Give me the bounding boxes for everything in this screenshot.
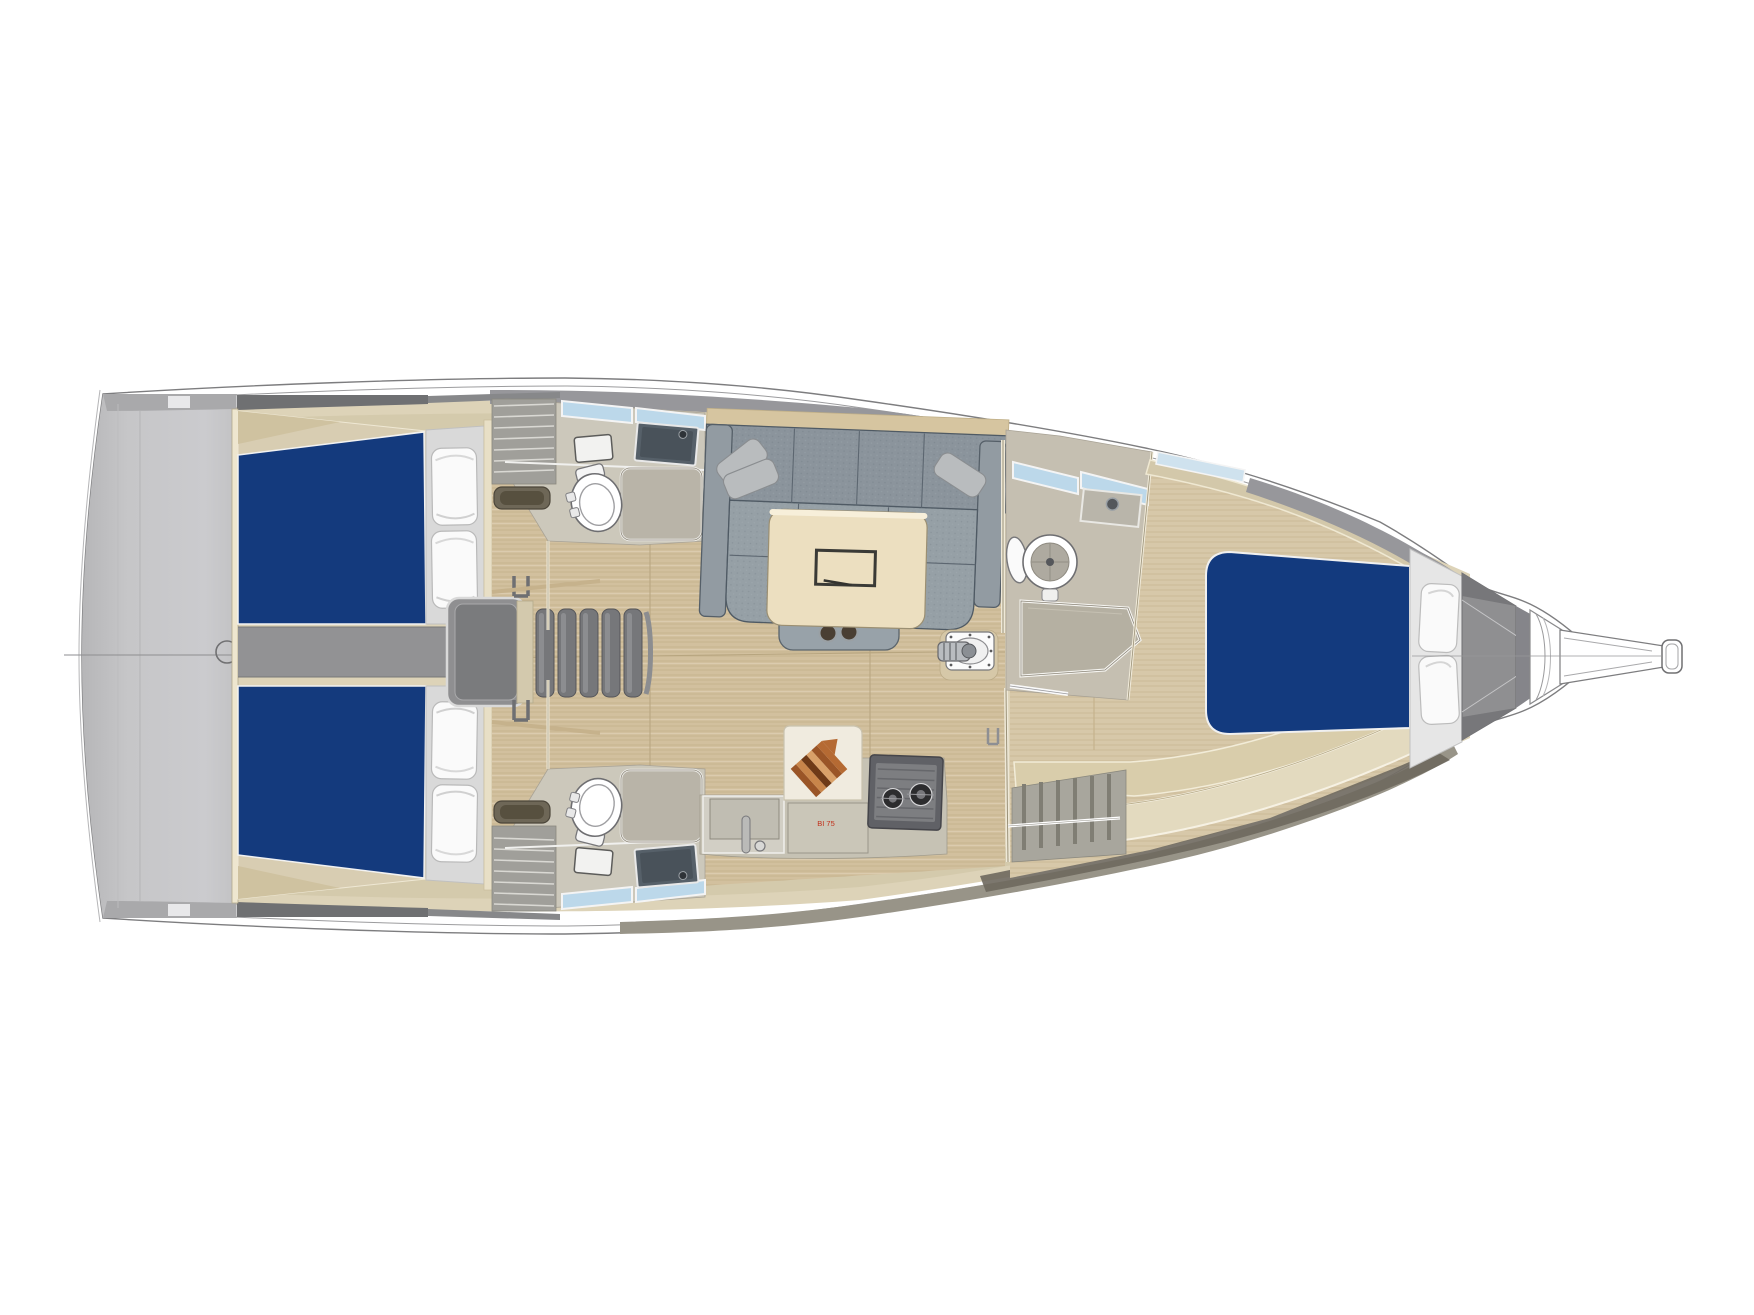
svg-text:BI 75: BI 75	[817, 819, 835, 828]
